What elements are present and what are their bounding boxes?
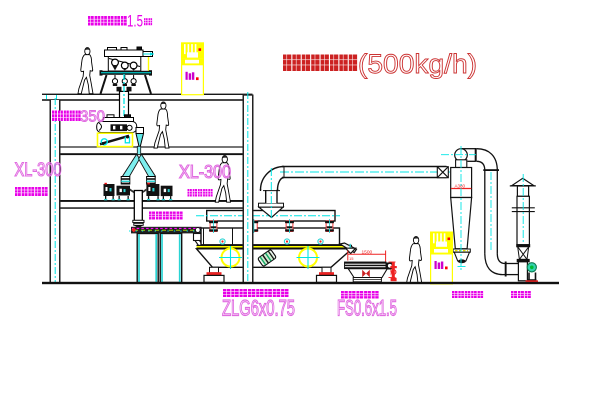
- svg-text:350: 350: [80, 109, 105, 126]
- svg-text:15: 15: [349, 256, 354, 261]
- svg-text:XL-300: XL-300: [15, 160, 62, 181]
- svg-text:XL-300: XL-300: [179, 162, 231, 182]
- svg-text:1500: 1500: [362, 249, 373, 255]
- svg-text:FS0.6x1.5: FS0.6x1.5: [337, 296, 397, 321]
- svg-text:1.5: 1.5: [127, 12, 143, 31]
- svg-text:ZLG6x0.75: ZLG6x0.75: [222, 296, 295, 321]
- svg-text:A380: A380: [455, 183, 466, 188]
- svg-text:(500kg/h): (500kg/h): [358, 49, 477, 79]
